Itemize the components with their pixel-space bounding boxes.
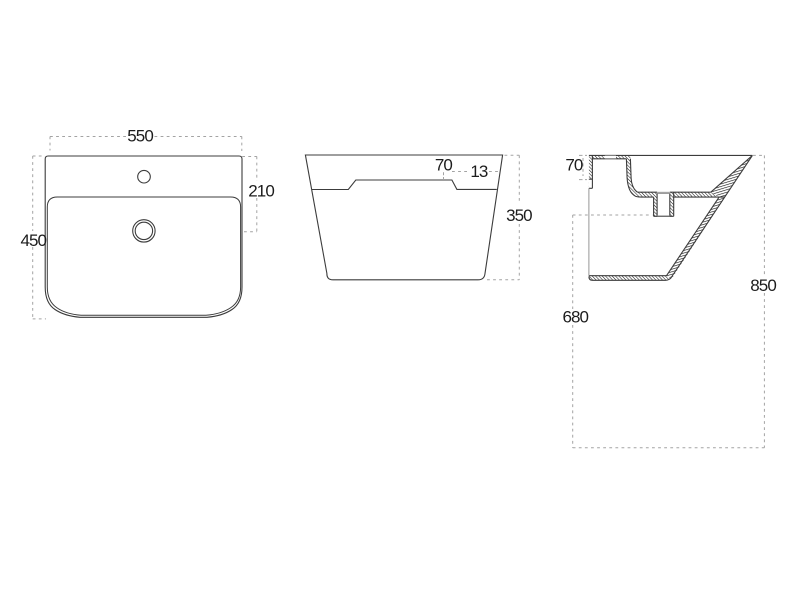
svg-text:450: 450 bbox=[20, 231, 46, 250]
svg-text:550: 550 bbox=[127, 127, 153, 146]
svg-text:13: 13 bbox=[470, 162, 488, 181]
svg-text:70: 70 bbox=[565, 156, 583, 175]
svg-text:350: 350 bbox=[506, 206, 532, 225]
svg-text:70: 70 bbox=[435, 156, 453, 175]
svg-text:680: 680 bbox=[562, 308, 588, 327]
svg-text:210: 210 bbox=[248, 182, 274, 201]
svg-text:850: 850 bbox=[750, 276, 776, 295]
